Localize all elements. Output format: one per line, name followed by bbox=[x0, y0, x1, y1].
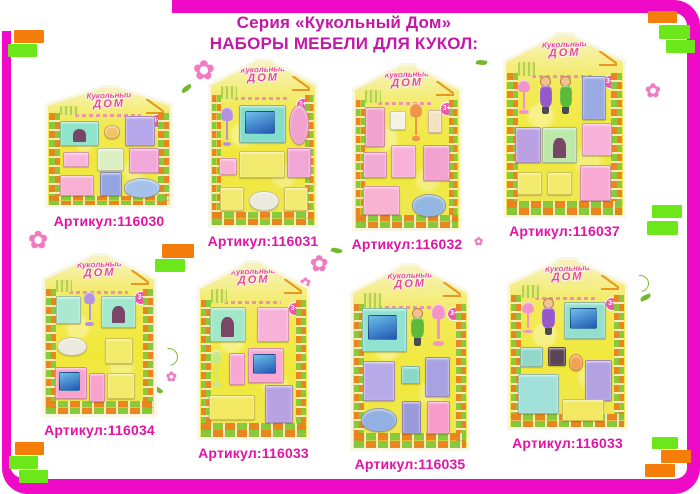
fireplace-arch bbox=[221, 317, 234, 336]
orange-accent-rect bbox=[648, 11, 677, 23]
fireplace-arch bbox=[73, 129, 87, 143]
toilet-toy bbox=[100, 172, 122, 196]
green-accent-rect bbox=[666, 40, 695, 53]
tv-screen bbox=[59, 372, 80, 391]
tv-toy bbox=[239, 105, 286, 143]
package-face: КукольныйДОМ3+ bbox=[200, 263, 307, 437]
fireplace-arch bbox=[553, 138, 565, 158]
flower-icon: ✿ bbox=[474, 236, 483, 247]
dresser-toy bbox=[363, 152, 387, 178]
blister-package: КукольныйДОМ3+ bbox=[42, 253, 157, 417]
doll-boy-toy bbox=[559, 76, 573, 114]
product-card: КукольныйДОМ3+Артикул:116031 bbox=[208, 58, 318, 254]
doll-legs bbox=[542, 107, 549, 115]
product-card: КукольныйДОМ3+Артикул:116037 bbox=[503, 32, 626, 244]
package-face: КукольныйДОМ3+ bbox=[353, 266, 467, 448]
mirror-toy bbox=[289, 105, 309, 145]
product-card: КукольныйДОМ3+Артикул:116033 bbox=[197, 260, 310, 466]
product-card: КукольныйДОМ3+Артикул:116034 bbox=[42, 253, 157, 443]
flower-icon: ✿ bbox=[166, 371, 177, 384]
tagline-squiggle bbox=[378, 102, 434, 105]
desk-toy bbox=[60, 175, 94, 197]
orange-accent-rect bbox=[14, 30, 44, 43]
lamp-stem bbox=[226, 120, 228, 140]
armchair-toy bbox=[547, 172, 572, 196]
article-number: Артикул:116034 bbox=[44, 422, 155, 438]
wardrobe-toy bbox=[363, 361, 395, 401]
product-card: КукольныйДОМ3+Артикул:116032 bbox=[352, 63, 462, 257]
chair-pink-toy bbox=[89, 373, 105, 402]
orange-accent-rect bbox=[661, 450, 691, 463]
desk-tv-toy bbox=[248, 348, 284, 383]
package-face: КукольныйДОМ3+ bbox=[211, 61, 315, 225]
doll-body bbox=[560, 86, 572, 106]
vine-swirl-icon bbox=[629, 272, 653, 296]
wardrobe-toy bbox=[265, 385, 293, 424]
fireplace-toy bbox=[210, 307, 246, 342]
orange-accent-rect bbox=[15, 442, 44, 455]
product-card: КукольныйДОМ3+Артикул:116035 bbox=[350, 263, 470, 477]
armchair-toy bbox=[105, 338, 133, 364]
package-face: КукольныйДОМ3+ bbox=[355, 66, 459, 228]
blister-package: КукольныйДОМ3+ bbox=[350, 263, 470, 451]
chair-toy bbox=[56, 296, 81, 325]
bath-rug-toy bbox=[249, 191, 278, 211]
tv-screen bbox=[245, 111, 275, 133]
lamp-stem bbox=[415, 115, 417, 134]
chair-toy bbox=[428, 110, 442, 133]
radio-toy bbox=[63, 152, 89, 167]
desk-tv-toy bbox=[55, 367, 88, 399]
stripe-decor bbox=[211, 289, 227, 303]
floor-lamp-toy bbox=[409, 103, 423, 140]
vine-swirl-icon bbox=[156, 344, 181, 369]
vanity-toy bbox=[391, 145, 416, 178]
doll-legs bbox=[545, 328, 553, 335]
bathtub-toy bbox=[412, 194, 446, 217]
brick-border-bottom bbox=[354, 433, 466, 448]
radio-toy bbox=[219, 158, 237, 175]
tissue-box-toy bbox=[390, 111, 406, 129]
blister-package: КукольныйДОМ3+ bbox=[507, 257, 628, 430]
lamp-stem bbox=[89, 303, 91, 320]
bathtub-toy bbox=[361, 408, 397, 432]
cup-toy bbox=[104, 125, 119, 139]
mirror-toy bbox=[57, 337, 87, 356]
mirror-stand-toy bbox=[365, 107, 385, 148]
lamp-stem bbox=[437, 318, 440, 340]
wardrobe-toy bbox=[423, 145, 450, 181]
fireplace-toy bbox=[101, 296, 137, 328]
lamp-stem bbox=[215, 362, 217, 381]
brick-border-right bbox=[611, 73, 622, 215]
floor-lamp-toy bbox=[520, 302, 535, 334]
tagline-squiggle bbox=[69, 291, 128, 294]
article-number: Артикул:116030 bbox=[54, 213, 165, 229]
lamp-lbase bbox=[519, 110, 529, 114]
green-accent-rect bbox=[9, 456, 38, 469]
brick-border-right bbox=[456, 304, 466, 448]
article-number: Артикул:116033 bbox=[198, 445, 309, 461]
article-number: Артикул:116031 bbox=[208, 233, 319, 249]
lamp-stem bbox=[523, 91, 525, 109]
stripe-decor bbox=[364, 293, 381, 308]
brick-border-bottom bbox=[507, 201, 622, 215]
chair-toy bbox=[229, 353, 245, 385]
table-toy bbox=[97, 148, 125, 171]
stripe-decor bbox=[518, 62, 536, 76]
brand-logo: КукольныйДОМ bbox=[45, 258, 155, 281]
sofa-toy bbox=[209, 395, 256, 420]
stripe-decor bbox=[365, 90, 381, 103]
green-accent-rect bbox=[659, 25, 690, 39]
leaf-icon bbox=[330, 246, 342, 254]
vanity-toy bbox=[425, 357, 450, 397]
leaf-icon bbox=[639, 293, 651, 301]
orange-accent-rect bbox=[162, 244, 194, 258]
brick-border-bottom bbox=[212, 212, 314, 225]
floor-lamp-toy bbox=[210, 350, 224, 387]
sofa-toy bbox=[239, 151, 285, 178]
article-number: Артикул:116033 bbox=[512, 435, 623, 451]
package-face: КукольныйДОМ3+ bbox=[45, 256, 154, 414]
brick-border-right bbox=[296, 300, 306, 437]
blister-package: КукольныйДОМ3+ bbox=[45, 85, 173, 208]
tv-screen bbox=[253, 354, 276, 375]
stripe-decor bbox=[56, 280, 72, 293]
doll-boy-toy bbox=[410, 308, 425, 346]
package-face: КукольныйДОМ3+ bbox=[510, 260, 625, 427]
doll-legs bbox=[562, 107, 569, 115]
blister-package: КукольныйДОМ3+ bbox=[197, 260, 310, 440]
armchair-toy bbox=[517, 172, 542, 196]
vanity-toy bbox=[515, 127, 540, 163]
tv-toy bbox=[564, 302, 606, 339]
lamp-lbase bbox=[412, 136, 421, 140]
bed-toy bbox=[363, 186, 399, 216]
sofa-toy bbox=[562, 399, 604, 421]
brick-border-left bbox=[49, 113, 60, 205]
stripe-decor bbox=[522, 285, 539, 298]
leaf-icon bbox=[476, 59, 488, 66]
brick-border-bottom bbox=[356, 215, 458, 228]
floor-lamp-toy bbox=[83, 292, 96, 325]
accessory-toy bbox=[569, 354, 584, 371]
blister-package: КукольныйДОМ3+ bbox=[503, 32, 626, 218]
product-card: КукольныйДОМ3+Артикул:116033 bbox=[507, 257, 628, 456]
radio-toy bbox=[520, 347, 543, 367]
green-accent-rect bbox=[652, 205, 682, 218]
tagline-squiggle bbox=[224, 301, 282, 304]
brand-logo: КукольныйДОМ bbox=[211, 63, 316, 86]
brick-border-bottom bbox=[201, 423, 306, 437]
toilet-toy bbox=[402, 401, 421, 434]
article-number: Артикул:116037 bbox=[509, 223, 620, 239]
article-number: Артикул:116035 bbox=[355, 456, 466, 472]
flower-icon: ✿ bbox=[645, 82, 661, 101]
tv-screen bbox=[570, 308, 597, 330]
lamp-lbase bbox=[212, 382, 221, 386]
doll-body bbox=[540, 86, 552, 106]
camera-toy bbox=[548, 347, 566, 366]
brick-border-bottom bbox=[49, 196, 169, 205]
stripe-decor bbox=[221, 86, 237, 99]
tv-toy bbox=[362, 308, 407, 352]
lamp-lbase bbox=[523, 330, 533, 334]
floor-lamp-toy bbox=[220, 107, 234, 146]
washstand-toy bbox=[125, 116, 155, 146]
brand-logo: КукольныйДОМ bbox=[506, 37, 624, 60]
radio-toy bbox=[401, 366, 420, 384]
flower-icon: ✿ bbox=[310, 254, 328, 276]
wardrobe-toy bbox=[585, 360, 612, 400]
green-accent-rect bbox=[647, 221, 678, 235]
series-title: Серия «Кукольный Дом» bbox=[0, 12, 688, 33]
product-card: КукольныйДОМ3+Артикул:116030 bbox=[45, 85, 173, 234]
floor-lamp-toy bbox=[517, 80, 532, 114]
blister-package: КукольныйДОМ3+ bbox=[352, 63, 462, 231]
fridge-toy bbox=[582, 76, 606, 119]
catalog-page: Серия «Кукольный Дом» НАБОРЫ МЕБЕЛИ ДЛЯ … bbox=[0, 0, 700, 494]
doll-body bbox=[411, 318, 424, 339]
piano-toy bbox=[582, 123, 612, 156]
armchair-toy bbox=[220, 187, 244, 210]
orange-accent-rect bbox=[645, 464, 675, 477]
armchair-toy bbox=[107, 373, 135, 399]
lamp-lbase bbox=[433, 341, 443, 346]
bathtub-toy bbox=[124, 178, 160, 198]
fireplace-toy bbox=[60, 121, 99, 146]
piano-toy bbox=[257, 307, 289, 342]
article-number: Артикул:116032 bbox=[352, 236, 463, 252]
green-accent-rect bbox=[652, 437, 678, 449]
blister-package: КукольныйДОМ3+ bbox=[208, 58, 318, 228]
brick-border-right bbox=[614, 295, 624, 427]
floor-lamp-toy bbox=[431, 304, 447, 346]
leaf-icon bbox=[180, 84, 192, 94]
piano-toy bbox=[129, 148, 159, 173]
brick-border-right bbox=[449, 100, 458, 228]
green-accent-rect bbox=[19, 470, 48, 483]
dining-table-toy bbox=[518, 374, 559, 414]
doll-girl-toy bbox=[539, 76, 553, 114]
fireplace-toy bbox=[542, 127, 577, 163]
armchair-toy bbox=[284, 187, 308, 210]
doll-girl-toy bbox=[541, 298, 556, 335]
green-accent-rect bbox=[8, 44, 37, 57]
tagline-squiggle bbox=[234, 97, 290, 100]
brand-logo: КукольныйДОМ bbox=[355, 68, 460, 91]
doll-body bbox=[542, 308, 555, 327]
brick-border-bottom bbox=[46, 401, 153, 414]
brick-border-right bbox=[158, 113, 169, 205]
desk-toy bbox=[580, 165, 611, 201]
lamp-stem bbox=[527, 312, 529, 328]
doll-legs bbox=[414, 338, 422, 346]
brand-logo: КукольныйДОМ bbox=[353, 269, 468, 292]
lamp-lbase bbox=[85, 322, 93, 326]
package-face: КукольныйДОМ3+ bbox=[506, 35, 623, 215]
lamp-lbase bbox=[223, 142, 232, 147]
tv-screen bbox=[368, 315, 397, 340]
mirror-toy bbox=[427, 401, 450, 434]
fireplace-arch bbox=[112, 306, 125, 323]
package-face: КукольныйДОМ3+ bbox=[48, 88, 170, 205]
brick-border-right bbox=[143, 289, 153, 414]
piano-toy bbox=[287, 148, 311, 178]
green-accent-rect bbox=[155, 259, 185, 272]
